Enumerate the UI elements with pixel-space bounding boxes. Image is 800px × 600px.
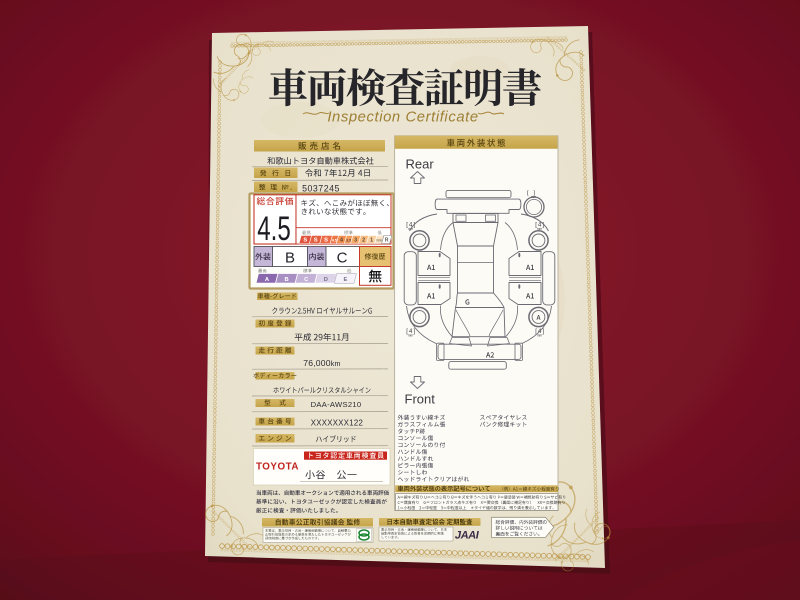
svg-text:S: S [314, 238, 318, 244]
svg-text:S: S [303, 238, 307, 244]
svg-text:E: E [343, 277, 347, 283]
svg-text:C: C [337, 250, 348, 267]
svg-text:B: B [285, 277, 289, 283]
svg-text:4.5: 4.5 [332, 239, 337, 243]
svg-text:JAAI: JAAI [454, 530, 480, 542]
svg-text:4: 4 [340, 238, 343, 244]
svg-text:mm: mm [531, 195, 537, 199]
svg-text:N/A: N/A [376, 239, 382, 243]
svg-text:S: S [324, 238, 328, 244]
svg-text:5037245: 5037245 [302, 184, 340, 194]
svg-text:mm: mm [408, 334, 414, 338]
svg-text:R: R [385, 238, 389, 244]
svg-text:3.5: 3.5 [346, 239, 351, 243]
svg-text:1: 1 [370, 238, 373, 244]
svg-text:D: D [324, 277, 328, 283]
svg-text:DAA-AWS210: DAA-AWS210 [311, 400, 362, 409]
svg-text:3: 3 [354, 238, 357, 244]
svg-text:XXXXXXX122: XXXXXXX122 [311, 418, 363, 427]
svg-text:Rear: Rear [406, 157, 435, 172]
svg-text:2: 2 [362, 238, 365, 244]
svg-text:4.5: 4.5 [257, 210, 291, 248]
svg-text:76,000km: 76,000km [303, 358, 340, 368]
svg-text:mm: mm [537, 334, 543, 338]
svg-text:Inspection Certificate: Inspection Certificate [327, 110, 478, 126]
svg-text:Front: Front [405, 392, 436, 407]
svg-text:mm: mm [537, 227, 543, 231]
svg-text:TOYOTA: TOYOTA [256, 462, 299, 473]
svg-text:B: B [285, 250, 295, 267]
